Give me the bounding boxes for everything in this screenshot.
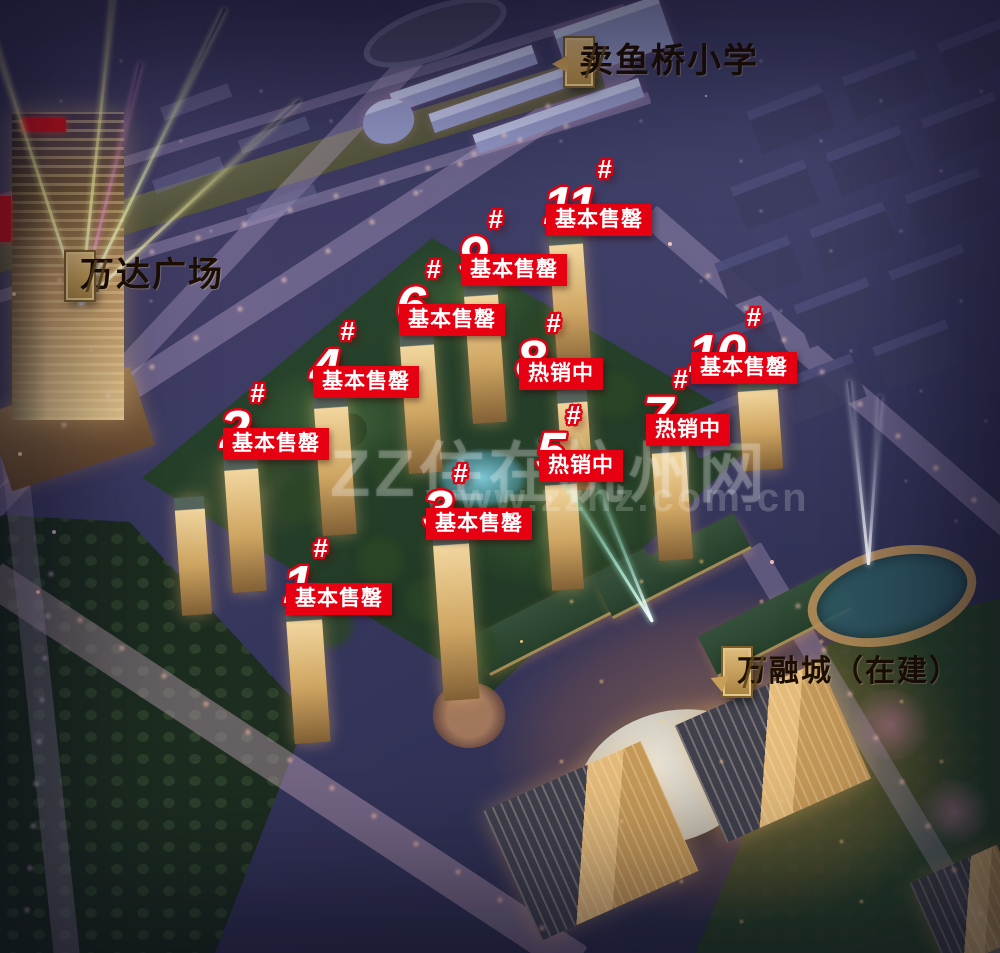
sale-status-badge: 基本售罄 <box>691 352 797 384</box>
street-lamps <box>36 590 40 594</box>
sale-status-badge: 热销中 <box>539 450 623 482</box>
residential-tower <box>737 377 783 472</box>
landmark-label: 卖鱼桥小学 <box>579 45 759 79</box>
sale-status-badge: 基本售罄 <box>399 304 505 336</box>
aerial-night-rendering: ZZ住在杭州网 www.zzhz.com.cn 1# 基本售罄 2# 基本售罄 … <box>0 0 1000 953</box>
street-lamps <box>12 292 16 296</box>
sale-status-badge: 基本售罄 <box>313 366 419 398</box>
park-light <box>845 690 935 760</box>
sale-status-badge: 热销中 <box>519 358 603 390</box>
park-light <box>915 780 995 844</box>
sale-status-badge: 基本售罄 <box>223 428 329 460</box>
pointer-icon <box>552 55 568 73</box>
city-lights <box>705 95 707 97</box>
landmark-label: 万融城（在建） <box>737 657 961 687</box>
street-lamps <box>18 452 22 456</box>
street-lamps <box>52 530 56 534</box>
wanda-sign <box>22 118 66 132</box>
sale-status-badge: 基本售罄 <box>426 508 532 540</box>
landmark-plaque-maiyuqiao-school[interactable]: 卖鱼桥小学 <box>565 38 593 86</box>
sale-status-badge: 基本售罄 <box>461 254 567 286</box>
landmark-plaque-wanrong-city[interactable]: 万融城（在建） <box>723 648 751 696</box>
sale-status-badge: 基本售罄 <box>546 204 652 236</box>
sale-status-badge: 基本售罄 <box>286 583 392 615</box>
street-lamps <box>770 560 774 564</box>
wanda-side-sign <box>0 196 11 242</box>
landmark-plaque-wanda-plaza[interactable]: 万达广场 <box>66 252 94 300</box>
street-lamps <box>668 242 672 246</box>
city-lights <box>520 640 523 643</box>
sale-status-badge: 热销中 <box>646 414 730 446</box>
